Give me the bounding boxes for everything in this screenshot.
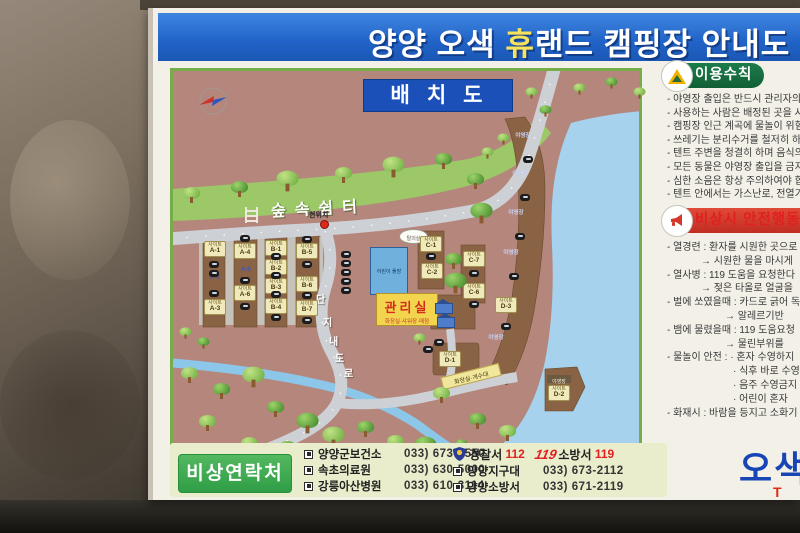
changing-room-label: 탈의실 [407,236,421,242]
emergency-contacts-header: 비상연락처 [178,454,292,493]
sign-title-bar: 양양 오색 휴랜드 캠핑장 안내도 [158,13,800,61]
safety-header: 비상시 안전행동 요령 [665,208,800,233]
road-name-char: 지 [323,314,332,329]
parking-icon [209,290,219,297]
contact-name: 양양군보건소 [318,446,404,462]
site-map-panel: 배치도 숲속쉼터 현위치 어린이 풀장 탈의실 관리실 화장실·샤워장·매점 단… [170,68,642,462]
megaphone-badge [661,205,693,237]
contact-row: 양양지구대 033) 673-2112 [453,463,624,479]
tree-icon [482,147,494,158]
rules-header: 이용수칙 [665,63,764,88]
safety-item: → 젖은 타올로 얼굴을 [667,282,800,296]
parking-icon [515,233,525,240]
tree-icon [382,157,404,178]
tree-icon [181,367,198,383]
safety-item: - 뱀에 물렸을때 : 119 도움요청 [667,324,800,338]
tree-icon [526,87,538,98]
rule-item: - 심한 소음은 항상 주의하여야 합 [667,175,800,189]
police-number: 112 [505,447,524,461]
title-pre: 양양 오색 [368,27,505,61]
parking-icon [426,253,436,260]
rule-item: - 텐트 주변을 청결히 하며 음식의 [667,147,800,161]
safety-item: → 물린부위를 [667,338,800,352]
fire-number: 119 [595,447,614,461]
site-b4: 사이트B-4 [265,298,287,314]
safety-item: - 열경련 : 환자를 시원한 곳으로 [667,241,800,255]
fire-label: 소방서 [558,446,591,463]
camp-section-label: 야영장 [503,210,529,216]
tree-icon [435,153,452,169]
site-b7: 사이트B-7 [296,300,318,316]
tree-icon [231,181,248,197]
site-code: D-2 [549,392,569,399]
tree-icon [469,413,486,429]
info-panel: 이용수칙 - 야영장 출입은 반드시 관리자의- 사용하는 사람은 배정된 곳을… [653,60,800,500]
site-code: D-1 [440,358,460,365]
parking-icon [469,270,479,277]
parking-icon [469,301,479,308]
tree-icon [444,273,466,294]
tree-icon [267,401,284,417]
tree-icon [183,187,200,203]
rule-item: - 사용하는 사람은 배정된 곳을 사 [667,107,800,121]
tree-icon [445,253,462,269]
rule-item: - 쓰레기는 분리수거를 철저히 하 [667,134,800,148]
parking-icon [341,278,351,285]
contact-phone: 033) 673-2112 [543,465,624,477]
office-label: 관리실 [377,297,437,316]
site-a1: 사이트A-1 [204,241,226,257]
tree-icon [606,77,618,88]
tree-icon [276,171,298,192]
fire-119-logo: 119 [533,447,558,462]
camp-section-label: 야영장 [510,133,536,139]
bullet-icon [304,450,313,459]
parking-icon [341,287,351,294]
parking-icon [271,291,281,298]
site-a6: 사이트A-6 [234,285,256,301]
safety-header-label: 비상시 안전행동 요령 [695,212,800,228]
safety-item: · 식후 바로 수영 [667,365,800,379]
tree-icon [213,383,230,399]
site-code: A-4 [235,250,255,257]
site-code: C-6 [464,290,484,297]
rules-header-label: 이용수칙 [695,67,752,83]
management-office: 관리실 화장실·샤워장·매점 [376,293,438,326]
site-code: A-6 [235,292,255,299]
safety-item: - 벌에 쏘였을때 : 카드로 긁어 독 [667,296,800,310]
police-badge-icon [453,447,466,461]
site-code: B-7 [297,307,317,314]
parking-icon [509,273,519,280]
background-shadow [0,500,800,533]
parking-icon [341,269,351,276]
current-location-pin-icon [320,220,329,229]
parking-icon [341,260,351,267]
tree-icon [414,333,426,344]
bullet-icon [304,482,313,491]
parking-icon [302,317,312,324]
tree-icon [296,413,318,434]
road-name-char: 도 [335,350,344,365]
parking-icon [271,272,281,279]
sign-title: 양양 오색 휴랜드 캠핑장 안내도 [368,19,790,61]
megaphone-icon [670,214,685,228]
rule-item: - 야영장 출입은 반드시 관리자의 [667,93,800,107]
site-code: D-3 [496,304,516,311]
road-name-char: 내 [329,333,338,348]
ladder-icon [245,207,258,223]
rule-item: - 모든 동물은 야영장 출입을 금지 [667,161,800,175]
site-code: C-2 [422,270,442,277]
emergency-contact-bar: 비상연락처 양양군보건소 033) 673-2550 속초의료원 033) 63… [170,443,667,497]
parking-icon [271,253,281,260]
campground-sign-board: 양양 오색 휴랜드 캠핑장 안내도 [148,8,800,500]
bullet-icon [304,466,313,475]
parking-icon [240,303,250,310]
tree-icon [198,337,210,348]
parking-icon [423,346,433,353]
site-a3: 사이트A-3 [204,299,226,315]
brand-tel-prefix: T [773,484,782,500]
safety-item: - 화재시 : 바람을 등지고 소화기 [667,407,800,421]
tree-icon [540,105,552,116]
camp-section-label: 야영장 [507,171,533,177]
pool-label: 어린이 풀장 [377,268,401,275]
safety-item: - 물놀이 안전 : · 혼자 수영하지 [667,351,800,365]
agency-contacts: 양양지구대 033) 673-2112 양양소방서 033) 671-2119 [453,463,624,495]
contact-name: 강릉아산병원 [318,478,404,494]
site-code: B-4 [266,305,286,312]
site-code: A-1 [205,248,225,255]
tree-icon [574,83,586,94]
site-c7: 사이트C-7 [463,251,485,267]
rule-item: - 캠핑장 인근 계곡에 물놀이 위험 [667,120,800,134]
emergency-numbers-row: 경찰서 112 119 소방서 119 [453,446,614,462]
rules-list: - 야영장 출입은 반드시 관리자의- 사용하는 사람은 배정된 곳을 사- 캠… [667,93,800,202]
parking-icon [271,314,281,321]
map-title: 배치도 [363,79,513,112]
camp-section-tag: 야영장 [547,375,571,383]
tree-icon [498,133,510,144]
site-d1: 사이트D-1 [439,351,461,367]
parking-icon [302,261,312,268]
safety-item: · 어린이 혼자 [667,393,800,407]
parking-icon [240,235,250,242]
rule-item: - 텐트 안에서는 가스난로, 전열기 [667,188,800,202]
site-c1: 사이트C-1 [420,236,442,252]
parking-icon [209,270,219,277]
camp-section-label: 야영장 [498,250,524,256]
tree-icon [357,421,374,437]
site-b6: 사이트B-6 [296,276,318,292]
safety-item: - 열사병 : 119 도움을 요청한다 [667,269,800,283]
parking-icon [434,339,444,346]
safety-item: · 음주 수영금지 [667,379,800,393]
safety-item: → 시원한 물을 마시게 [667,255,800,269]
site-b5: 사이트B-5 [296,243,318,259]
camp-section-label: 야영장 [483,335,509,341]
parking-icon [302,292,312,299]
rock-texture [10,120,130,280]
site-a4: 사이트A-4 [234,243,256,259]
parking-icon [523,156,533,163]
contact-name: 양양소방서 [467,479,543,495]
contact-phone: 033) 671-2119 [543,481,624,493]
brand-name: 오색 [739,440,800,492]
site-code: C-7 [464,258,484,265]
office-sub-label: 화장실·샤워장·매점 [377,317,437,325]
tree-icon [433,387,450,403]
contact-name: 속초의료원 [318,462,404,478]
parking-icon [520,194,530,201]
site-code: B-6 [297,283,317,290]
parking-icon [341,251,351,258]
title-post: 랜드 캠핑장 안내도 [535,27,790,61]
parking-icon [501,323,511,330]
children-pool: 어린이 풀장 [370,247,408,295]
facility-building-icon [437,317,455,328]
bullet-icon [453,467,462,476]
safety-list: - 열경련 : 환자를 시원한 곳으로→ 시원한 물을 마시게- 열사병 : 1… [667,241,800,420]
site-a5-label: A-5 [237,267,255,274]
police-label: 경찰서 [469,446,502,463]
bullet-icon [453,483,462,492]
site-d3: 사이트D-3 [495,297,517,313]
road-name-char: 로 [344,365,353,380]
site-code: A-3 [205,306,225,313]
parking-icon [240,277,250,284]
parking-icon [302,236,312,243]
site-code: B-5 [297,250,317,257]
warning-triangle-icon [668,69,686,84]
tree-icon [499,425,516,441]
tree-icon [470,203,492,224]
site-d2: 사이트D-2 [548,385,570,401]
tree-icon [634,87,646,98]
parking-icon [209,261,219,268]
site-code: C-1 [421,243,441,250]
warning-badge [661,60,693,92]
rock-texture [0,330,140,480]
tree-icon [335,167,352,183]
tree-icon [180,327,192,338]
tree-icon [242,367,264,388]
contact-row: 양양소방서 033) 671-2119 [453,479,624,495]
current-location-label: 현위치 [309,210,328,220]
tree-icon [199,415,216,431]
title-highlight: 휴 [505,27,535,61]
contact-name: 양양지구대 [467,463,543,479]
site-c2: 사이트C-2 [421,263,443,279]
safety-item: → 알레르기반 [667,310,800,324]
tree-icon [467,173,484,189]
